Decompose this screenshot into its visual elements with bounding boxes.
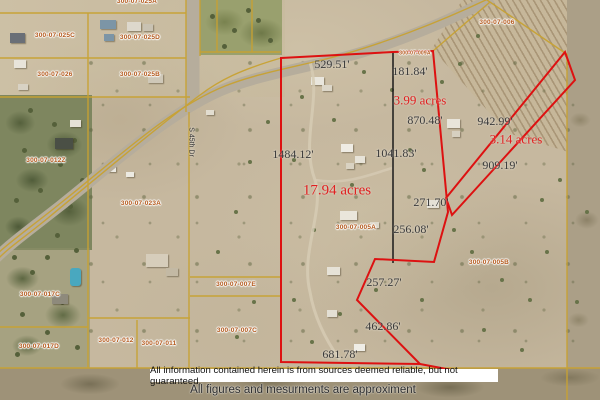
measurement-label: 909.19': [482, 159, 517, 171]
acreage-label: 17.94 acres: [303, 184, 371, 199]
parcel-id-label: 300-07-005B: [469, 260, 509, 267]
measurement-label: 1041.83': [375, 147, 416, 159]
acreage-label: 3.99 acres: [394, 94, 447, 107]
measurement-label: 256.08': [393, 223, 428, 235]
parcel-id-label: 300-07-025A: [117, 0, 157, 5]
parcel-id-label: 300-07-012: [98, 338, 133, 345]
parcel-id-label: 300-07-025D: [120, 35, 160, 42]
parcel-id-label: 300-07-017C: [20, 292, 60, 299]
parcel-id-label: 300-07-025B: [120, 72, 160, 79]
measurement-label: 462.86': [365, 320, 400, 332]
measurement-label: 1484.12': [272, 148, 313, 160]
measurement-label: 257.27': [366, 276, 401, 288]
map-lines-overlay: [0, 0, 600, 400]
street-label: S 45th Dr: [188, 127, 195, 157]
parcel-id-label: 300-07-025C: [35, 33, 75, 40]
parcel-id-label: 300-07-009A: [399, 52, 430, 57]
parcel-id-label: 300-07-026: [37, 72, 72, 79]
measurement-label: 181.84': [392, 65, 427, 77]
measurement-label: 271.70': [413, 196, 448, 208]
dirt-trail: [308, 62, 340, 360]
measurement-label: 870.48': [407, 114, 442, 126]
aerial-parcel-map: 300-07-025A 300-07-025C 300-07-025D 300-…: [0, 0, 600, 400]
dirt-trail-2: [315, 168, 392, 181]
parcel-id-label: 300-07-023A: [121, 201, 161, 208]
parcel-id-label: 300-07-006: [479, 20, 514, 27]
approximation-note: All figures and mesurments are approxime…: [190, 384, 416, 396]
yellow-parcel-lines: [0, 0, 600, 400]
parcel-id-label: 300-07-007E: [216, 282, 256, 289]
disclaimer-bar: All information contained herein is from…: [150, 369, 498, 382]
parcel-id-label: 300-07-011: [142, 341, 177, 348]
parcel-id-label: 300-07-017D: [19, 344, 59, 351]
parcel-id-label: 300-07-007C: [217, 328, 257, 335]
measurement-label: 529.51': [314, 58, 349, 70]
measurement-label: 681.78': [322, 348, 357, 360]
parcel-id-label: 300-07-012Z: [26, 158, 65, 165]
parcel-id-label: 300-07-005A: [336, 225, 376, 232]
acreage-label: 3.14 acres: [490, 133, 543, 146]
measurement-label: 942.99': [477, 115, 512, 127]
